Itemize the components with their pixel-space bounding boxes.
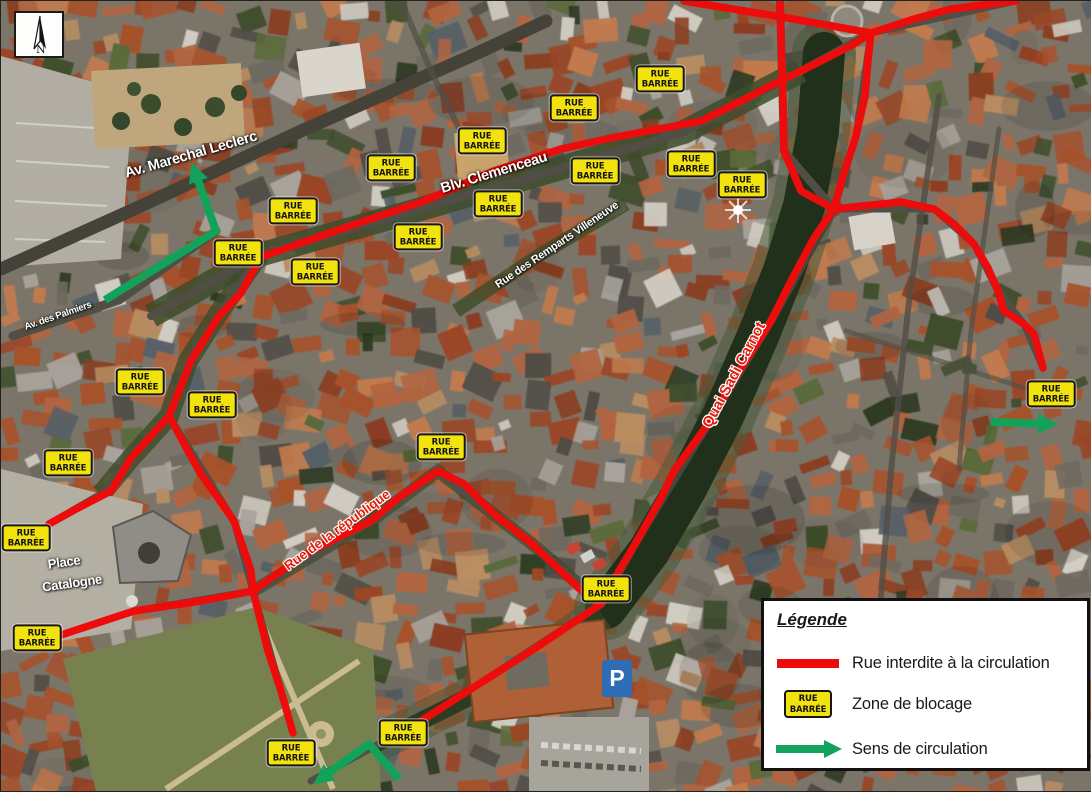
rue-barree-badge: RUEBARRÉE (214, 239, 263, 266)
rue-barree-badge: RUEBARRÉE (267, 739, 316, 766)
parking-label: P (609, 665, 624, 692)
badge-line1: RUE (194, 395, 231, 405)
badge-line2: BARRÉE (8, 539, 45, 549)
badge-line1: RUE (50, 453, 87, 463)
rue-barree-badge: RUEBARRÉE (116, 368, 165, 395)
rue-barree-badge: RUEBARRÉE (636, 65, 685, 92)
badge-line1: RUE (588, 579, 625, 589)
parking-icon: P (602, 660, 632, 697)
badge-line2: BARRÉE (642, 80, 679, 90)
legend-item-direction: Sens de circulation (764, 732, 1087, 766)
badge-line1: RUE (1033, 384, 1070, 394)
badge-line2: BARRÉE (273, 754, 310, 764)
rue-barree-badge: RUEBARRÉE (2, 524, 51, 551)
rue-barree-badge: RUEBARRÉE (1027, 380, 1076, 407)
closed-street-swatch (777, 659, 839, 668)
rue-barree-badge-swatch: RUE BARRÉE (784, 690, 833, 717)
badge-line2: BARRÉE (275, 212, 312, 222)
badge-line1: RUE (464, 131, 501, 141)
rue-barree-badge: RUEBARRÉE (367, 154, 416, 181)
legend-label: Zone de blocage (852, 695, 972, 714)
badge-line2: BARRÉE (297, 273, 334, 283)
badge-line1: RUE (577, 161, 614, 171)
badge-line1: RUE (556, 98, 593, 108)
badge-line2: BARRÉE (673, 165, 710, 175)
badge-line1: RUE (275, 201, 312, 211)
badge-line2: BARRÉE (556, 109, 593, 119)
legend-title: Légende (777, 610, 1087, 630)
rue-barree-badge: RUEBARRÉE (379, 719, 428, 746)
legend-item-blockade: RUE BARRÉE Zone de blocage (764, 687, 1087, 721)
badge-line2: BARRÉE (385, 734, 422, 744)
direction-arrow-fleche-est (991, 422, 1051, 424)
rue-barree-badge: RUEBARRÉE (291, 258, 340, 285)
rue-barree-badge: RUEBARRÉE (188, 391, 237, 418)
rue-barree-badge: RUEBARRÉE (458, 127, 507, 154)
badge-line2: BARRÉE (122, 383, 159, 393)
direction-arrow-swatch (772, 739, 844, 759)
rue-barree-badge: RUEBARRÉE (582, 575, 631, 602)
badge-line2: BARRÉE (480, 205, 517, 215)
rue-barree-badge: RUEBARRÉE (667, 150, 716, 177)
rue-barree-badge: RUEBARRÉE (474, 190, 523, 217)
north-arrow: N (14, 11, 64, 58)
badge-line2: BARRÉE (220, 254, 257, 264)
badge-line1: RUE (122, 372, 159, 382)
badge-line2: BARRÉE (50, 464, 87, 474)
map-canvas: Av. Marechal LeclercBlv. ClemenceauRue d… (0, 0, 1091, 792)
badge-line1: RUE (724, 175, 761, 185)
badge-line2: BARRÉE (423, 448, 460, 458)
badge-line2: BARRÉE (464, 142, 501, 152)
badge-line1: RUE (273, 743, 310, 753)
badge-line1: RUE (790, 694, 827, 704)
badge-line1: RUE (373, 158, 410, 168)
badge-line1: RUE (673, 154, 710, 164)
badge-line1: RUE (480, 194, 517, 204)
badge-line1: RUE (19, 628, 56, 638)
badge-line1: RUE (423, 437, 460, 447)
badge-line2: BARRÉE (373, 169, 410, 179)
badge-line1: RUE (297, 262, 334, 272)
badge-line1: RUE (400, 227, 437, 237)
badge-line2: BARRÉE (724, 186, 761, 196)
rue-barree-badge: RUEBARRÉE (571, 157, 620, 184)
legend-label: Sens de circulation (852, 740, 988, 759)
north-label: N (36, 43, 46, 56)
rue-barree-badge: RUEBARRÉE (269, 197, 318, 224)
badge-line1: RUE (8, 528, 45, 538)
rue-barree-badge: RUEBARRÉE (417, 433, 466, 460)
badge-line2: BARRÉE (1033, 395, 1070, 405)
badge-line2: BARRÉE (577, 172, 614, 182)
badge-line1: RUE (385, 723, 422, 733)
badge-line2: BARRÉE (400, 238, 437, 248)
rue-barree-badge: RUEBARRÉE (718, 171, 767, 198)
badge-line1: RUE (220, 243, 257, 253)
badge-line2: BARRÉE (790, 705, 827, 715)
compass-needle-icon: N (16, 13, 62, 56)
badge-line2: BARRÉE (19, 639, 56, 649)
rue-barree-badge: RUEBARRÉE (13, 624, 62, 651)
badge-line2: BARRÉE (194, 406, 231, 416)
rue-barree-badge: RUEBARRÉE (44, 449, 93, 476)
legend-item-closed-street: Rue interdite à la circulation (764, 646, 1087, 680)
legend-panel: Légende Rue interdite à la circulation R… (761, 598, 1090, 771)
rue-barree-badge: RUEBARRÉE (550, 94, 599, 121)
badge-line1: RUE (642, 69, 679, 79)
legend-label: Rue interdite à la circulation (852, 654, 1050, 673)
badge-line2: BARRÉE (588, 590, 625, 600)
rue-barree-badge: RUEBARRÉE (394, 223, 443, 250)
